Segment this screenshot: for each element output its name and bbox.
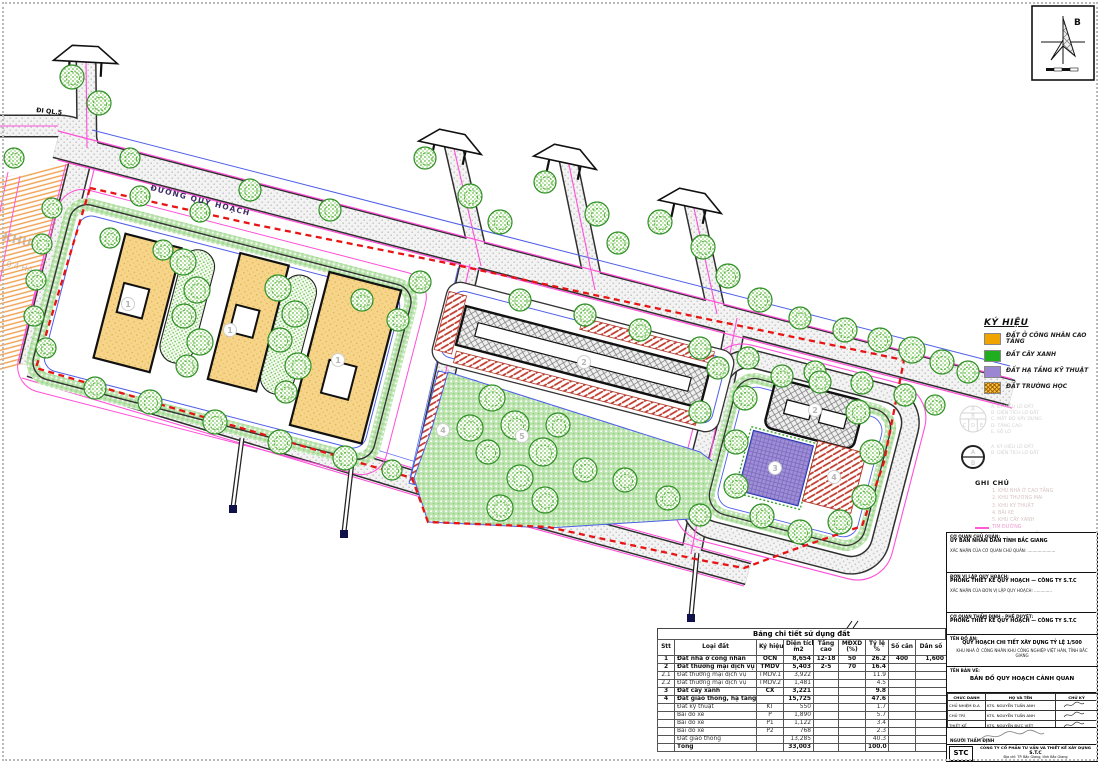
- drawing-title: BẢN ĐỒ QUY HOẠCH CẢNH QUAN: [950, 676, 1094, 683]
- ghichu-item: 4. BÃI XE: [975, 511, 1099, 517]
- tree-icon: [488, 210, 512, 234]
- entrance-gates: [53, 44, 725, 227]
- table-row: Đất kỹ thuậtKT5501.7: [658, 703, 947, 711]
- table-cell: Đất giao thông: [675, 735, 757, 743]
- table-header: Tầngcao: [814, 640, 839, 656]
- table-cell: [839, 671, 866, 679]
- tree-icon: [846, 400, 870, 424]
- table-row: 2.2Đất thương mại dịch vụTMDV.21,4814.5: [658, 679, 947, 687]
- tree-icon: [957, 361, 979, 383]
- tree-icon: [414, 147, 436, 169]
- legend-swatch: [984, 382, 1001, 394]
- table-cell: [814, 703, 839, 711]
- plot-tag-2part-icon: A B: [957, 443, 991, 475]
- table-cell: Bãi đỗ xe: [675, 727, 757, 735]
- tree-icon: [100, 228, 120, 248]
- table-header: Stt: [658, 640, 675, 656]
- table-cell: [916, 663, 947, 671]
- table-cell: [839, 679, 866, 687]
- table-cell: [839, 743, 866, 751]
- svg-text:D: D: [971, 423, 975, 429]
- tree-icon: [532, 487, 558, 513]
- tree-icon: [138, 390, 162, 414]
- tree-icon: [828, 510, 852, 534]
- legend-item: ĐẤT Ở CÔNG NHÂN CAO TẦNG: [984, 333, 1100, 346]
- table-header: MĐXD(%): [839, 640, 866, 656]
- legend-item: ĐẤT TRƯỜNG HỌC: [984, 382, 1100, 394]
- ghichu-text: 1. KHU NHÀ Ở CAO TẦNG: [992, 489, 1053, 495]
- table-cell: Đất thương mại dịch vụ: [675, 679, 757, 687]
- tree-icon: [534, 171, 556, 193]
- tree-icon: [32, 234, 52, 254]
- plot-number-badge: 1: [332, 354, 345, 367]
- table-header: Dân số: [916, 640, 947, 656]
- sig-row: THIẾT KẾKTS. NGUYỄN ĐỨC VIỆT: [948, 721, 1098, 729]
- table-row: 4Đất giao thông, hạ tầng kỹ thuật15,7254…: [658, 695, 947, 703]
- company-name: CÔNG TY CỔ PHẦN TƯ VẤN VÀ THIẾT KẾ XÂY D…: [976, 746, 1095, 750]
- table-cell: [814, 695, 839, 703]
- tree-icon: [852, 485, 876, 509]
- tree-icon: [748, 288, 772, 312]
- table-cell: 9.8: [866, 687, 889, 695]
- sig-row: CHỦ NHIỆM Đ.AKTS. NGUYỄN TUẤN ANH: [948, 701, 1098, 711]
- svg-text:1: 1: [335, 356, 341, 365]
- table-cell: 550: [784, 703, 814, 711]
- tree-icon: [184, 277, 210, 303]
- tree-icon: [84, 377, 106, 399]
- table-cell: TMDV: [757, 663, 784, 671]
- table-cell: Đất giao thông, hạ tầng kỹ thuật: [675, 695, 757, 703]
- tree-icon: [351, 289, 373, 311]
- table-cell: 1,122: [784, 719, 814, 727]
- table-cell: 2-5: [814, 663, 839, 671]
- tree-icon: [733, 386, 757, 410]
- plot-number-badge: 4: [437, 424, 450, 437]
- legend-label: ĐẤT Ở CÔNG NHÂN CAO TẦNG: [1006, 333, 1100, 346]
- consultant-name: PHÒNG THIẾT KẾ QUY HOẠCH — CÔNG TY S.T.C: [950, 579, 1094, 585]
- table-cell: P1: [757, 719, 784, 727]
- tree-icon: [26, 270, 46, 290]
- tree-icon: [265, 275, 291, 301]
- table-cell: Đất cây xanh: [675, 687, 757, 695]
- legend-swatch: [984, 333, 1001, 345]
- table-cell: [814, 735, 839, 743]
- plot-number-badge: 5: [516, 430, 529, 443]
- tree-icon: [724, 474, 748, 498]
- table-cell: [889, 695, 916, 703]
- tree-icon: [689, 337, 711, 359]
- utility-stub: [229, 438, 242, 513]
- plot-number-badge: 1: [122, 298, 135, 311]
- note-line: B. DIỆN TÍCH LÔ ĐẤT: [991, 451, 1039, 457]
- table-cell: [839, 735, 866, 743]
- table-cell: Đất thương mại dịch vụ: [675, 671, 757, 679]
- tree-icon: [656, 486, 680, 510]
- table-cell: [757, 735, 784, 743]
- tree-icon: [509, 289, 531, 311]
- project-name-2: KHU NHÀ Ở CÔNG NHÂN KHU CÔNG NGHIỆP VIỆT…: [950, 648, 1094, 658]
- table-cell: [814, 679, 839, 687]
- plot-number-badge: 2: [578, 356, 591, 369]
- table-cell: [658, 743, 675, 751]
- tree-icon: [87, 91, 111, 115]
- table-cell: 768: [784, 727, 814, 735]
- table-cell: Bãi đỗ xe: [675, 719, 757, 727]
- table-row: 2.1Đất thương mại dịch vụTMDV.13,92211.9: [658, 671, 947, 679]
- table-cell: 2.1: [658, 671, 675, 679]
- table-cell: [889, 719, 916, 727]
- table-cell: [889, 703, 916, 711]
- ghichu-item: 3. KHU KỸ THUẬT: [975, 504, 1099, 510]
- tree-icon: [689, 401, 711, 423]
- table-cell: [658, 735, 675, 743]
- table-cell: [889, 735, 916, 743]
- north-label: B: [1074, 18, 1081, 28]
- tree-icon: [930, 350, 954, 374]
- tree-icon: [809, 371, 831, 393]
- company-logo: STC: [949, 746, 973, 761]
- sig-header: CHỨC DANH: [948, 694, 986, 701]
- table-cell: P2: [757, 727, 784, 735]
- table-cell: OCN: [757, 655, 784, 663]
- tree-icon: [203, 410, 227, 434]
- sig-role: CHỦ NHIỆM Đ.A: [948, 701, 986, 711]
- plot-tag-5part-icon: A B C D E: [957, 403, 991, 439]
- tree-icon: [860, 440, 884, 464]
- legend-title: KÝ HIỆU: [984, 318, 1100, 328]
- line-sample: [975, 527, 989, 529]
- ghichu-item: 1. KHU NHÀ Ở CAO TẦNG: [975, 489, 1099, 495]
- sig-header: HỌ VÀ TÊN: [986, 694, 1056, 701]
- svg-text:1: 1: [227, 326, 233, 335]
- tree-icon: [120, 148, 140, 168]
- tree-icon: [333, 446, 357, 470]
- tree-icon: [170, 249, 196, 275]
- tree-icon: [239, 179, 261, 201]
- ghichu-text: 4. BÃI XE: [992, 511, 1014, 517]
- table-cell: [839, 719, 866, 727]
- authority-signline: XÁC NHẬN CỦA CƠ QUAN CHỦ QUẢN: .........…: [950, 548, 1094, 553]
- table-cell: [916, 711, 947, 719]
- svg-text:A: A: [971, 407, 975, 413]
- tree-icon: [285, 353, 311, 379]
- tree-icon: [574, 304, 596, 326]
- tree-icon: [176, 355, 198, 377]
- table-cell: CX: [757, 687, 784, 695]
- north-arrow: B: [1032, 6, 1094, 80]
- legend-label: ĐẤT CÂY XANH: [1006, 352, 1056, 358]
- note-line: C. MẬT ĐỘ XÂY DỰNG: [991, 417, 1042, 423]
- table-cell: [916, 679, 947, 687]
- tree-icon: [275, 381, 297, 403]
- table-header: Diện tíchm2: [784, 640, 814, 656]
- review-label: NGƯỜI THẨM ĐỊNH: [950, 738, 994, 743]
- plot-number-badge: 2: [809, 404, 822, 417]
- signature: [1056, 711, 1098, 721]
- table-cell: Bãi đỗ xe: [675, 711, 757, 719]
- table-cell: [658, 727, 675, 735]
- table-cell: [916, 687, 947, 695]
- table-cell: [916, 735, 947, 743]
- table-cell: 1: [658, 655, 675, 663]
- table-header: Ký hiệu: [757, 640, 784, 656]
- svg-text:C: C: [963, 423, 967, 429]
- table-header: Tỷ lệ%: [866, 640, 889, 656]
- table-cell: 70: [839, 663, 866, 671]
- tree-icon: [607, 232, 629, 254]
- table-cell: [889, 743, 916, 751]
- tree-icon: [387, 309, 409, 331]
- tree-icon: [899, 337, 925, 363]
- tree-icon: [507, 465, 533, 491]
- table-cell: 2: [658, 663, 675, 671]
- table-cell: [839, 727, 866, 735]
- land-use-table: Bảng chi tiết sử dụng đất SttLoại đấtKý …: [657, 628, 946, 752]
- ghichu-text: 3. KHU KỸ THUẬT: [992, 504, 1034, 510]
- approver-name: PHÒNG THIẾT KẾ QUY HOẠCH — CÔNG TY S.T.C: [950, 619, 1094, 625]
- tree-icon: [42, 198, 62, 218]
- tree-icon: [894, 384, 916, 406]
- project-name-1: QUY HOẠCH CHI TIẾT XÂY DỰNG TỶ LỆ 1/500: [950, 641, 1094, 647]
- table-cell: [814, 671, 839, 679]
- svg-text:3: 3: [772, 464, 778, 473]
- tree-icon: [724, 430, 748, 454]
- table-cell: Đất nhà ở công nhân: [675, 655, 757, 663]
- table-cell: P: [757, 711, 784, 719]
- table-cell: [916, 671, 947, 679]
- tree-icon: [789, 307, 811, 329]
- table-row: 3Đất cây xanhCX3,2219.8: [658, 687, 947, 695]
- table-cell: [839, 703, 866, 711]
- tree-icon: [487, 495, 513, 521]
- table-cell: 3: [658, 687, 675, 695]
- notes-panel: A B C D E A. KÝ HIỆU LÔ ĐẤTB. DIỆN TÍCH …: [957, 403, 1099, 540]
- tree-icon: [546, 413, 570, 437]
- tree-icon: [833, 318, 857, 342]
- table-cell: 2.3: [866, 727, 889, 735]
- sig-role: THIẾT KẾ: [948, 721, 986, 729]
- svg-text:5: 5: [519, 432, 525, 441]
- tree-icon: [925, 395, 945, 415]
- table-cell: 16.4: [866, 663, 889, 671]
- ghichu-item: 5. KHU CÂY XANH: [975, 518, 1099, 524]
- tree-icon: [382, 460, 402, 480]
- table-cell: [889, 663, 916, 671]
- tree-icon: [24, 306, 44, 326]
- table-cell: 15,725: [784, 695, 814, 703]
- table-cell: [889, 711, 916, 719]
- tree-icon: [585, 202, 609, 226]
- table-cell: 2.2: [658, 679, 675, 687]
- tree-icon: [130, 186, 150, 206]
- table-cell: 3.4: [866, 719, 889, 727]
- table-cell: [658, 711, 675, 719]
- svg-text:E: E: [980, 423, 983, 429]
- legend-swatch: [984, 366, 1001, 378]
- table-cell: Đất kỹ thuật: [675, 703, 757, 711]
- title-block: CƠ QUAN CHỦ QUẢN: ỦY BAN NHÂN DÂN TỈNH B…: [946, 532, 1098, 762]
- company-address: Địa chỉ: TP. Bắc Giang, tỉnh Bắc Giang: [976, 756, 1095, 760]
- table-cell: Đất thương mại dịch vụ: [675, 663, 757, 671]
- table-cell: 5,403: [784, 663, 814, 671]
- svg-text:2: 2: [812, 406, 818, 415]
- legend-item: ĐẤT HẠ TẦNG KỸ THUẬT: [984, 366, 1100, 378]
- legend: KÝ HIỆU ĐẤT Ở CÔNG NHÂN CAO TẦNGĐẤT CÂY …: [984, 318, 1100, 398]
- plot-number-badge: 3: [769, 462, 782, 475]
- legend-item: ĐẤT CÂY XANH: [984, 350, 1100, 362]
- svg-text:4: 4: [440, 426, 446, 435]
- table-header: Loại đất: [675, 640, 757, 656]
- table-cell: 1,600: [916, 655, 947, 663]
- ghichu-text: 5. KHU CÂY XANH: [992, 518, 1034, 524]
- tree-icon: [476, 440, 500, 464]
- tree-icon: [737, 347, 759, 369]
- ghichu-item: TIM ĐƯỜNG: [975, 525, 1099, 531]
- table-cell: 4.5: [866, 679, 889, 687]
- table-cell: [839, 711, 866, 719]
- ghichu-title: GHI CHÚ: [975, 479, 1099, 487]
- table-cell: [889, 679, 916, 687]
- tree-icon: [36, 338, 56, 358]
- ghichu-text: TIM ĐƯỜNG: [992, 525, 1022, 531]
- tree-icon: [771, 365, 793, 387]
- ghichu-text: 2. KHU THƯƠNG MẠI: [992, 496, 1043, 502]
- table-cell: 13,285: [784, 735, 814, 743]
- tree-icon: [707, 357, 729, 379]
- table-cell: [757, 743, 784, 751]
- table-cell: [757, 695, 784, 703]
- authority-name: ỦY BAN NHÂN DÂN TỈNH BẮC GIANG: [950, 539, 1094, 545]
- tree-icon: [750, 504, 774, 528]
- table-row: Bãi đỗ xeP1,8905.7: [658, 711, 947, 719]
- table-cell: 1,890: [784, 711, 814, 719]
- table-cell: 50: [839, 655, 866, 663]
- table-cell: [814, 727, 839, 735]
- tree-icon: [4, 148, 24, 168]
- table-cell: 1.7: [866, 703, 889, 711]
- legend-label: ĐẤT TRƯỜNG HỌC: [1006, 384, 1067, 390]
- table-cell: [814, 711, 839, 719]
- table-row: Tổng33,003100.0: [658, 743, 947, 751]
- table-cell: 3,922: [784, 671, 814, 679]
- legend-swatch: [984, 350, 1001, 362]
- svg-text:4: 4: [831, 473, 837, 482]
- note-line: E. SỐ LÔ: [991, 430, 1042, 436]
- tree-icon: [788, 520, 812, 544]
- table-cell: 3,221: [784, 687, 814, 695]
- table-row: Bãi đỗ xeP27682.3: [658, 727, 947, 735]
- svg-text:A: A: [971, 449, 976, 456]
- table-cell: 5.7: [866, 711, 889, 719]
- table-header: Số căn: [889, 640, 916, 656]
- table-row: Bãi đỗ xeP11,1223.4: [658, 719, 947, 727]
- plot-number-badge: 1: [224, 324, 237, 337]
- table-cell: [658, 719, 675, 727]
- table-row: 2Đất thương mại dịch vụTMDV5,4032-57016.…: [658, 663, 947, 671]
- table-cell: [916, 727, 947, 735]
- table-cell: Tổng: [675, 743, 757, 751]
- plot-number-badge: 4: [828, 471, 841, 484]
- table-cell: [814, 719, 839, 727]
- table-cell: KT: [757, 703, 784, 711]
- signature: [1056, 701, 1098, 711]
- tree-icon: [629, 319, 651, 341]
- table-cell: [814, 687, 839, 695]
- table-cell: [916, 695, 947, 703]
- tree-icon: [458, 184, 482, 208]
- tree-icon: [613, 468, 637, 492]
- tree-icon: [457, 415, 483, 441]
- tree-icon: [268, 430, 292, 454]
- tree-icon: [409, 271, 431, 293]
- table-cell: [889, 687, 916, 695]
- table-cell: [814, 743, 839, 751]
- sig-name: KTS. NGUYỄN TUẤN ANH: [986, 701, 1056, 711]
- table-cell: 100.0: [866, 743, 889, 751]
- table-cell: [839, 695, 866, 703]
- svg-text:B: B: [971, 460, 975, 467]
- tree-icon: [851, 372, 873, 394]
- table-cell: [889, 671, 916, 679]
- table-cell: [916, 703, 947, 711]
- table-cell: [658, 703, 675, 711]
- table-cell: 40.3: [866, 735, 889, 743]
- table-cell: 1,481: [784, 679, 814, 687]
- tree-icon: [60, 65, 84, 89]
- tree-icon: [529, 438, 557, 466]
- tree-icon: [716, 264, 740, 288]
- ghichu-item: 2. KHU THƯƠNG MẠI: [975, 496, 1099, 502]
- table-cell: 47.6: [866, 695, 889, 703]
- table-cell: 26.2: [866, 655, 889, 663]
- table-cell: [916, 743, 947, 751]
- tree-icon: [868, 328, 892, 352]
- table-row: 1Đất nhà ở công nhânOCN8,65412-185026.24…: [658, 655, 947, 663]
- tree-icon: [282, 301, 308, 327]
- tree-icon: [648, 210, 672, 234]
- drawing-title-label: TÊN BẢN VẼ:: [950, 668, 1094, 673]
- table-cell: 11.9: [866, 671, 889, 679]
- tree-icon: [153, 240, 173, 260]
- signature: [1056, 721, 1098, 729]
- table-cell: [839, 687, 866, 695]
- table-cell: TMDV.1: [757, 671, 784, 679]
- tree-icon: [268, 328, 292, 352]
- land-use-table-title: Bảng chi tiết sử dụng đất: [657, 628, 946, 639]
- table-cell: [916, 719, 947, 727]
- svg-text:1: 1: [125, 300, 131, 309]
- tree-icon: [319, 199, 341, 221]
- table-cell: 4: [658, 695, 675, 703]
- tree-icon: [172, 304, 196, 328]
- sig-row: CHỦ TRÌKTS. NGUYỄN TUẤN ANH: [948, 711, 1098, 721]
- consultant-signline: XÁC NHẬN CỦA ĐƠN VỊ LẬP QUY HOẠCH: .....…: [950, 588, 1094, 593]
- tree-icon: [187, 329, 213, 355]
- table-cell: 33,003: [784, 743, 814, 751]
- sig-header: CHỮ KÝ: [1056, 694, 1098, 701]
- table-cell: 400: [889, 655, 916, 663]
- svg-text:B: B: [971, 414, 975, 420]
- svg-text:2: 2: [581, 358, 587, 367]
- table-cell: 12-18: [814, 655, 839, 663]
- table-cell: [889, 727, 916, 735]
- drawing-sheet: KHU DÂN CƯ 0.4 HA: [0, 0, 1100, 763]
- tree-icon: [691, 235, 715, 259]
- tree-icon: [479, 385, 505, 411]
- table-cell: TMDV.2: [757, 679, 784, 687]
- sig-role: CHỦ TRÌ: [948, 711, 986, 721]
- sig-name: KTS. NGUYỄN ĐỨC VIỆT: [986, 721, 1056, 729]
